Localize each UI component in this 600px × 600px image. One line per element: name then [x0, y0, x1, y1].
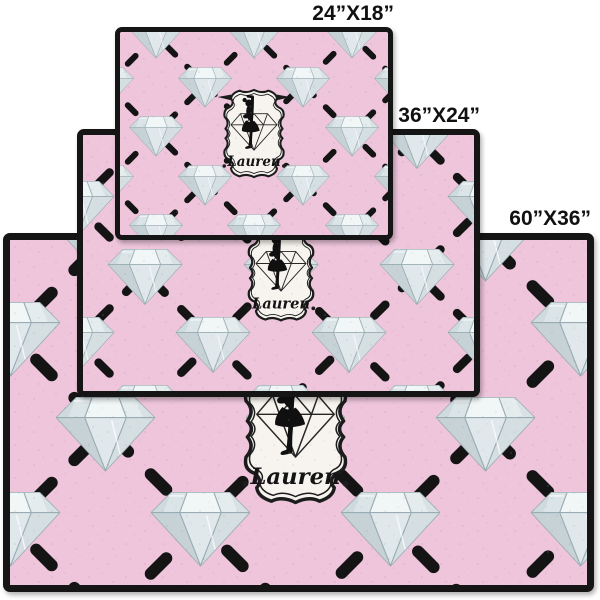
mat-design: Lauren [120, 32, 388, 235]
size-label-24x18: 24”X18” [0, 2, 394, 26]
mat-24x18-preview: Lauren [115, 27, 393, 240]
mat-size-comparison: 24”X18” 36”X24” 60”X36” Lauren Lauren La… [0, 0, 600, 600]
